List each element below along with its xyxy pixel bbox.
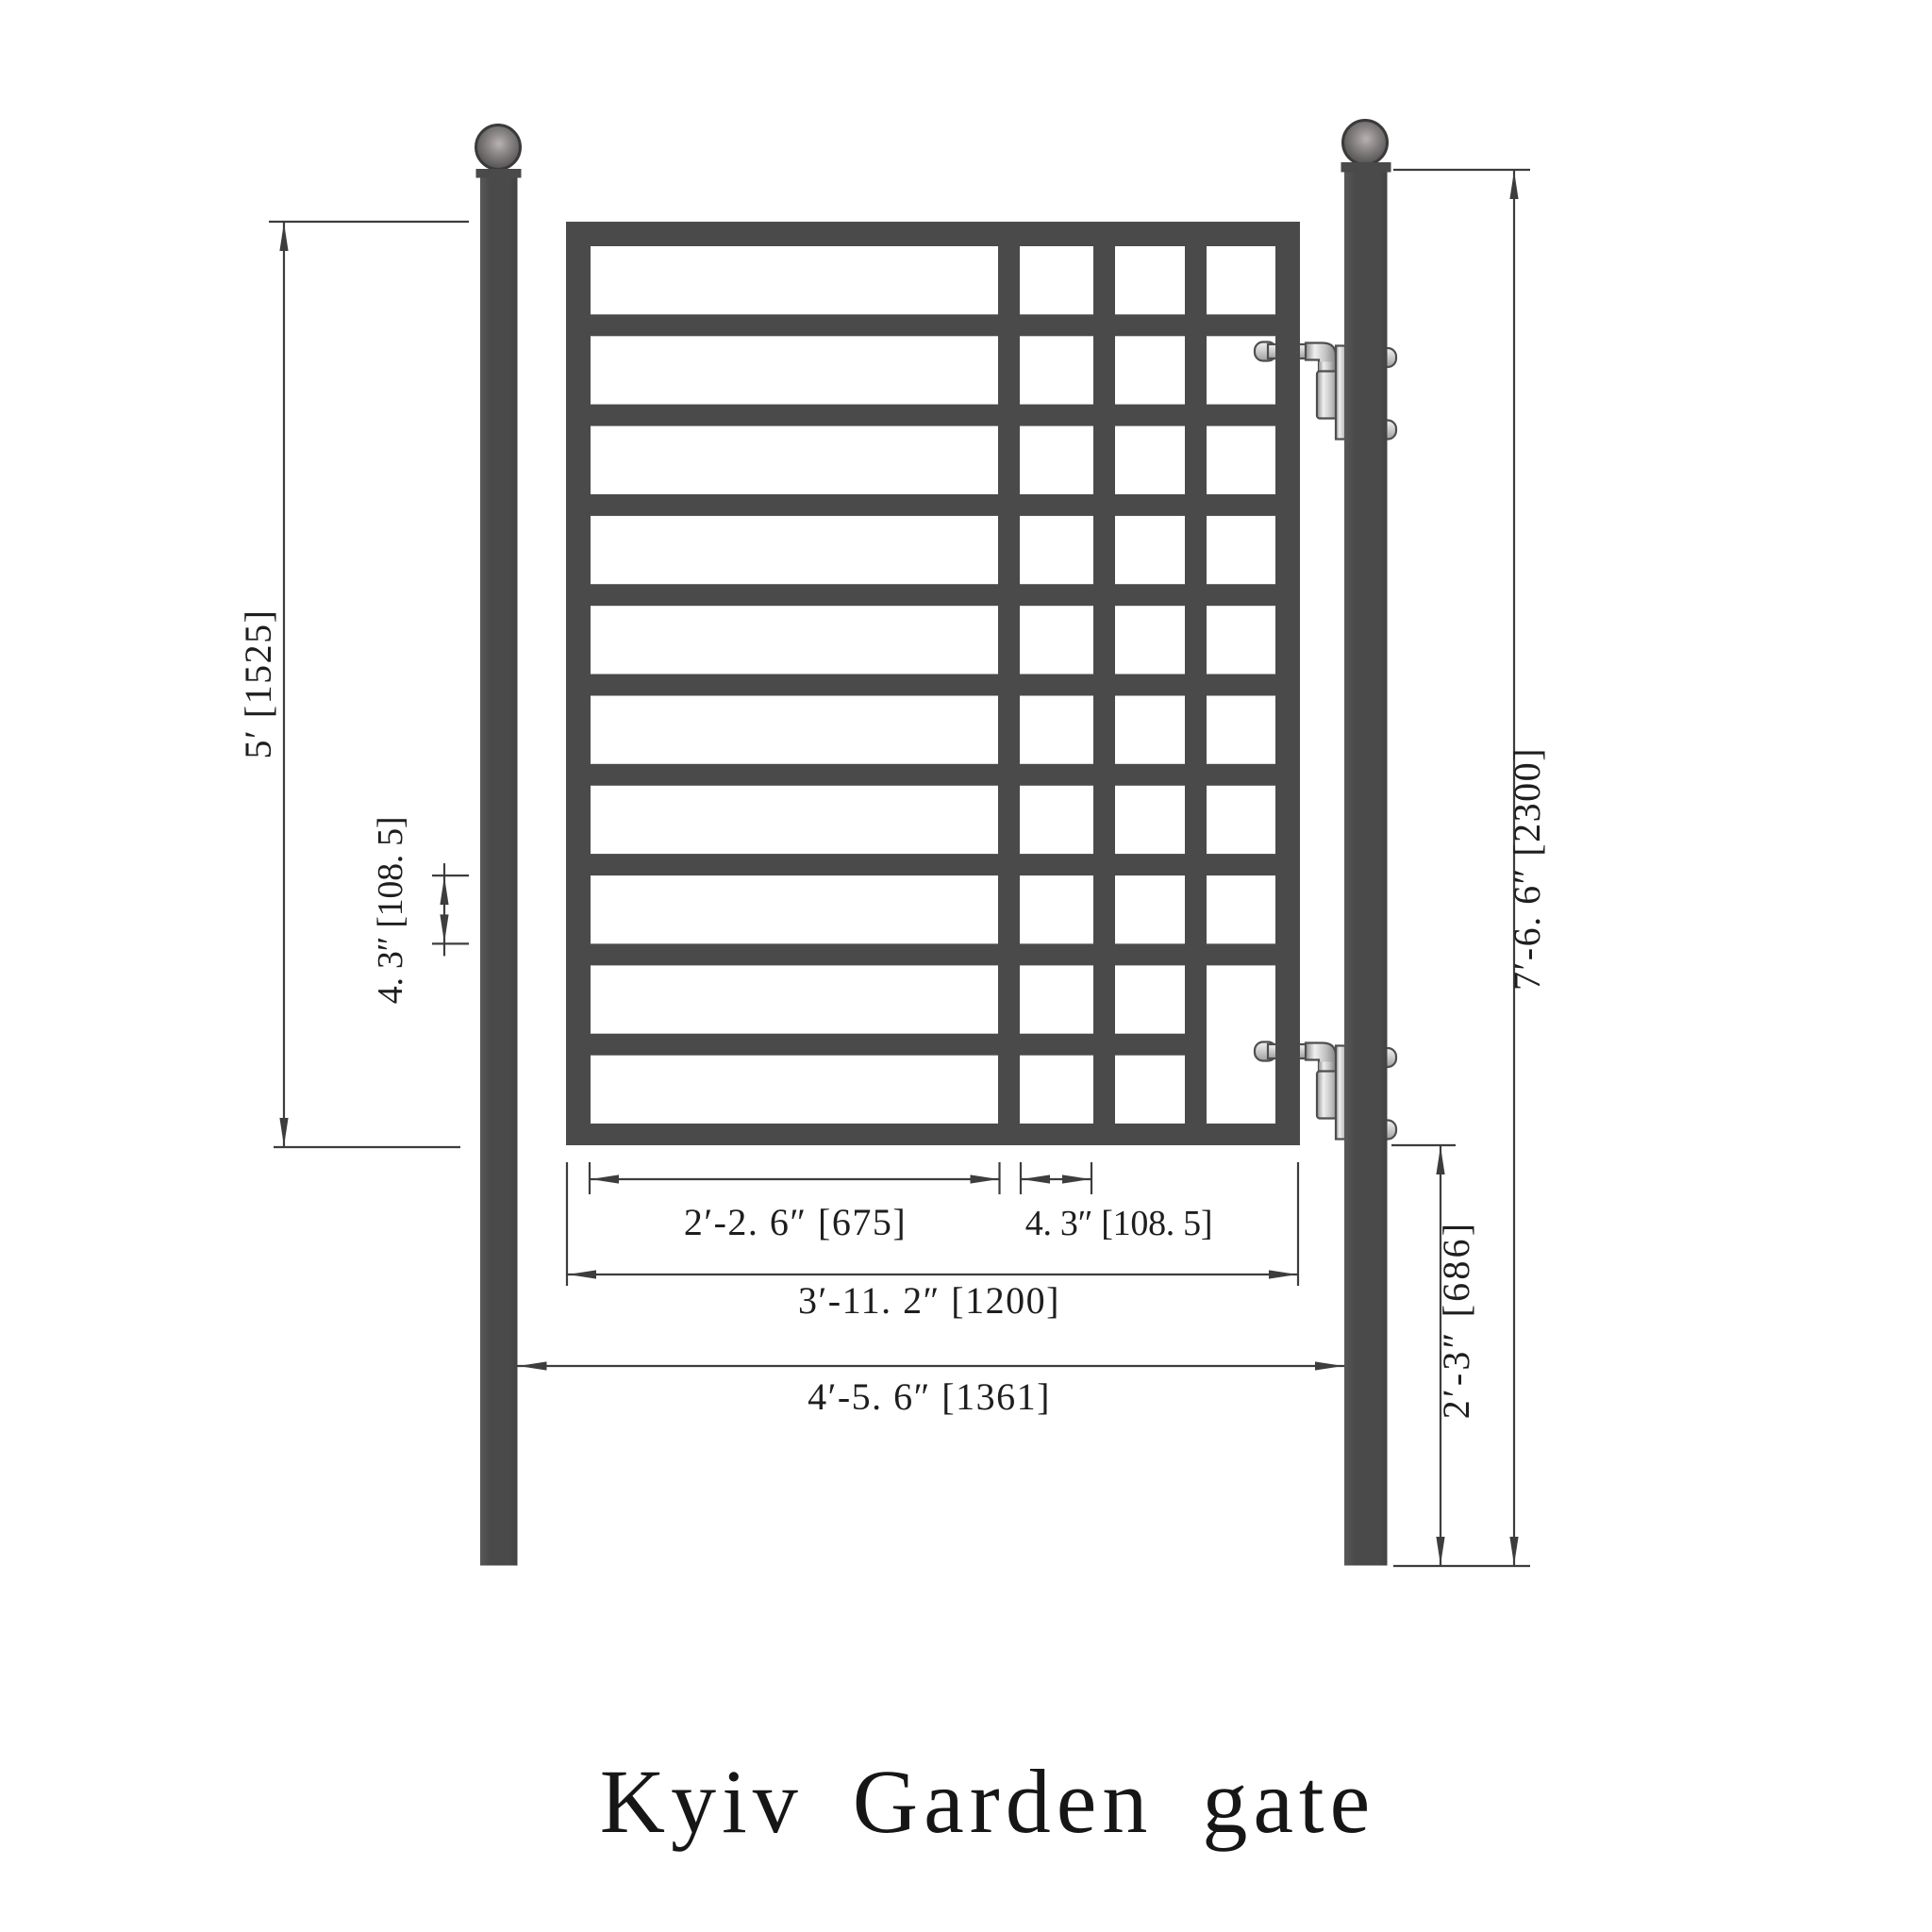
svg-text:5′ [1525]: 5′ [1525] (237, 609, 279, 759)
svg-text:7′-6. 6″ [2300]: 7′-6. 6″ [2300] (1506, 747, 1548, 991)
svg-text:4. 3″ [108. 5]: 4. 3″ [108. 5] (1025, 1204, 1212, 1243)
svg-text:4. 3″ [108. 5]: 4. 3″ [108. 5] (371, 817, 410, 1004)
svg-text:Kyiv Garden gate: Kyiv Garden gate (600, 1751, 1375, 1852)
svg-text:4′-5. 6″ [1361]: 4′-5. 6″ [1361] (808, 1375, 1051, 1418)
svg-text:2′-2. 6″ [675]: 2′-2. 6″ [675] (684, 1201, 907, 1243)
svg-text:3′-11. 2″ [1200]: 3′-11. 2″ [1200] (798, 1279, 1060, 1322)
svg-text:2′-3″ [686]: 2′-3″ [686] (1435, 1221, 1477, 1420)
